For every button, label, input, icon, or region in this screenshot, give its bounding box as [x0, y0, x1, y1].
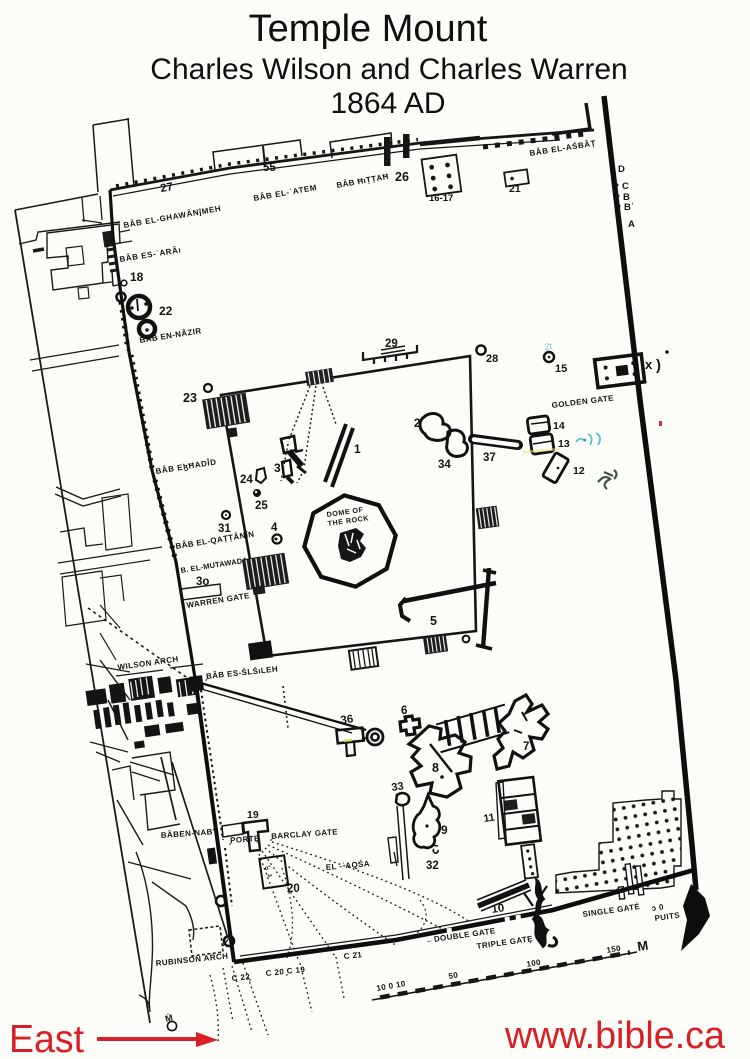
- svg-text:ɔ 0: ɔ 0: [651, 902, 665, 913]
- svg-text:24: 24: [240, 474, 253, 486]
- svg-text:2: 2: [414, 418, 420, 430]
- svg-text:12: 12: [573, 465, 585, 477]
- svg-text:21: 21: [509, 183, 521, 195]
- svg-text:3: 3: [274, 461, 281, 475]
- svg-text:55: 55: [263, 162, 276, 174]
- svg-text:11: 11: [483, 812, 496, 825]
- svg-text:34: 34: [438, 459, 451, 471]
- svg-text:7: 7: [523, 741, 529, 753]
- svg-text:36: 36: [340, 713, 354, 727]
- svg-text:18: 18: [130, 270, 144, 284]
- svg-text:C: C: [622, 181, 629, 192]
- svg-text:5: 5: [430, 614, 437, 628]
- svg-text:4: 4: [271, 522, 278, 534]
- svg-text:1: 1: [354, 442, 361, 456]
- svg-text:M: M: [636, 938, 649, 954]
- svg-text:50: 50: [448, 970, 459, 981]
- svg-text:9: 9: [441, 823, 448, 837]
- svg-text:Bʾ: Bʾ: [624, 202, 634, 213]
- svg-text:Charles Wilson and Charles War: Charles Wilson and Charles Warren: [150, 53, 627, 86]
- svg-text:www.bible.ca: www.bible.ca: [504, 1015, 726, 1057]
- svg-text:1864 AD: 1864 AD: [330, 87, 445, 120]
- svg-text:16-17: 16-17: [429, 193, 453, 204]
- svg-text:31: 31: [218, 523, 231, 535]
- svg-text:8: 8: [432, 761, 439, 775]
- svg-text:15: 15: [555, 363, 567, 375]
- svg-text:22: 22: [159, 304, 173, 318]
- svg-text:14: 14: [553, 420, 565, 432]
- svg-text:x: x: [645, 357, 653, 372]
- svg-text:26: 26: [395, 170, 409, 184]
- svg-text:27: 27: [159, 181, 174, 195]
- svg-text:32: 32: [426, 860, 439, 872]
- svg-text:28: 28: [486, 353, 498, 365]
- svg-text:25: 25: [255, 500, 268, 512]
- svg-text:6: 6: [401, 705, 407, 717]
- svg-text:): ): [656, 357, 661, 374]
- svg-text:Temple Mount: Temple Mount: [249, 8, 488, 50]
- svg-text:23: 23: [183, 391, 197, 405]
- svg-text:D: D: [618, 164, 625, 175]
- svg-text:19: 19: [247, 809, 259, 821]
- svg-text:37: 37: [483, 452, 496, 464]
- svg-text:A: A: [628, 219, 635, 230]
- svg-text:East: East: [9, 1018, 84, 1059]
